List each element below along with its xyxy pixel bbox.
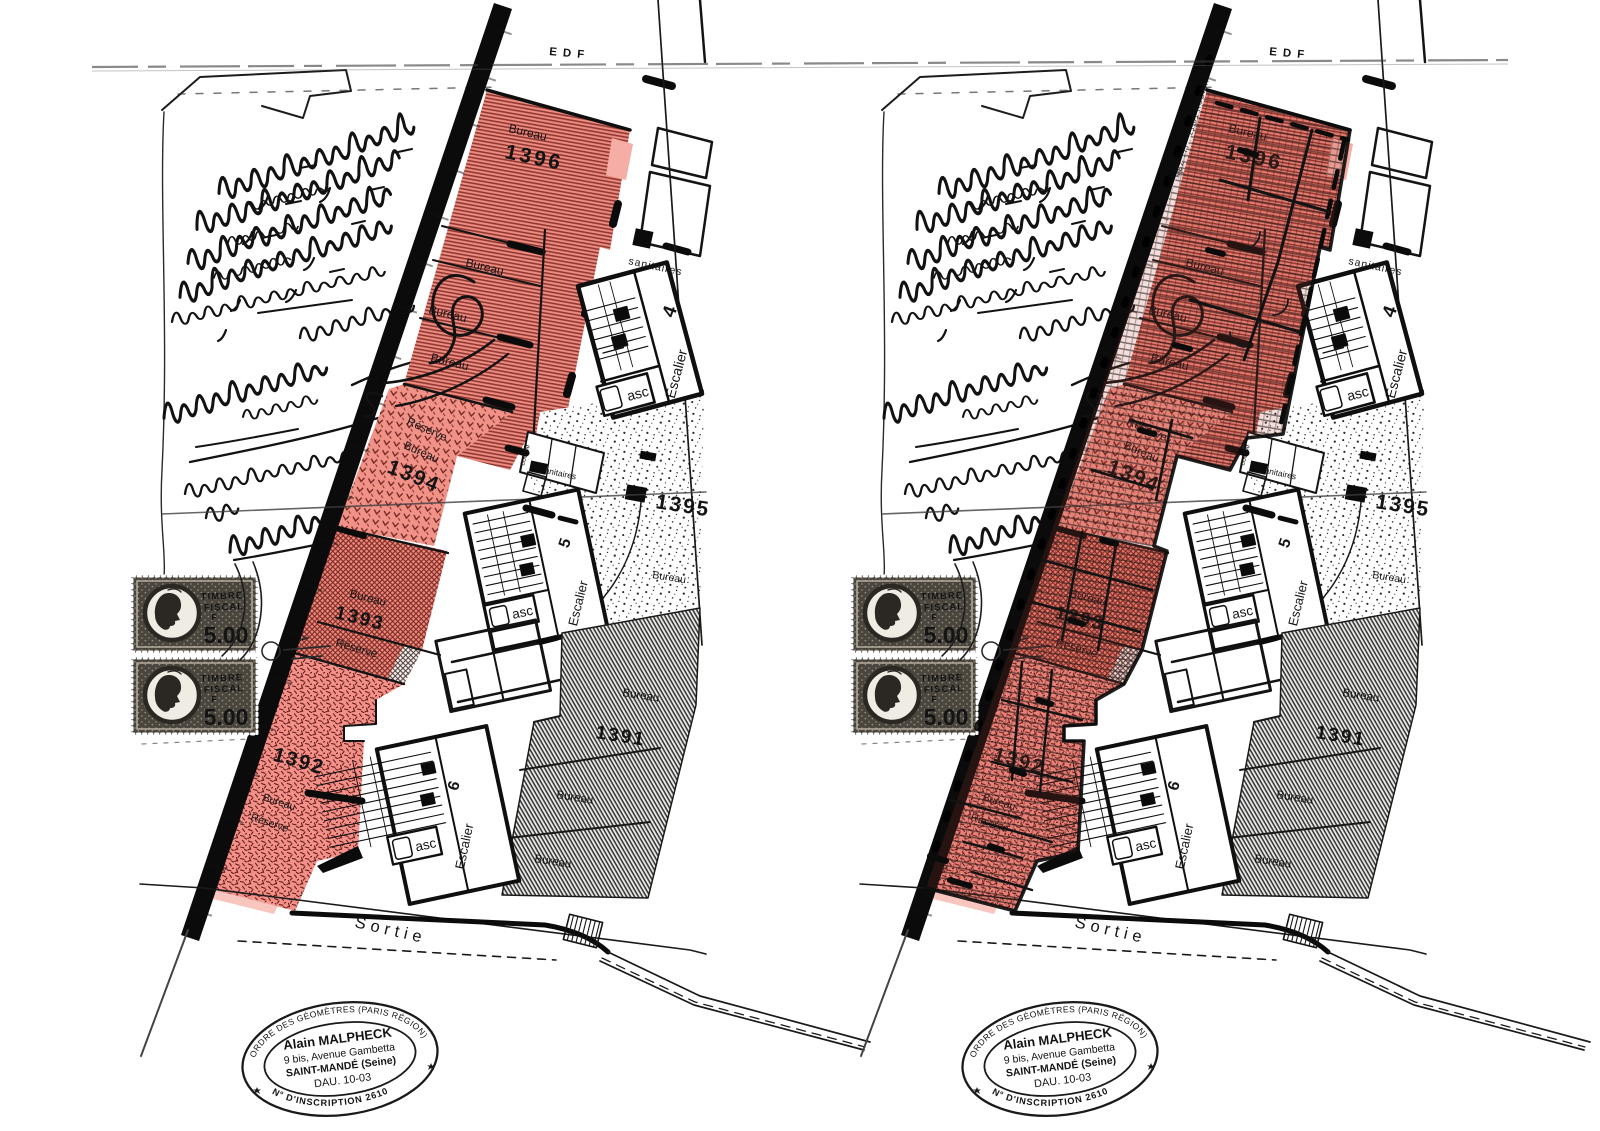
svg-text:EDF: EDF [549,46,591,62]
svg-text:5.00: 5.00 [204,704,249,730]
svg-text:F: F [211,694,216,704]
svg-text:FISCAL: FISCAL [204,601,245,613]
svg-text:F: F [211,612,216,622]
svg-text:FISCAL: FISCAL [204,683,245,695]
